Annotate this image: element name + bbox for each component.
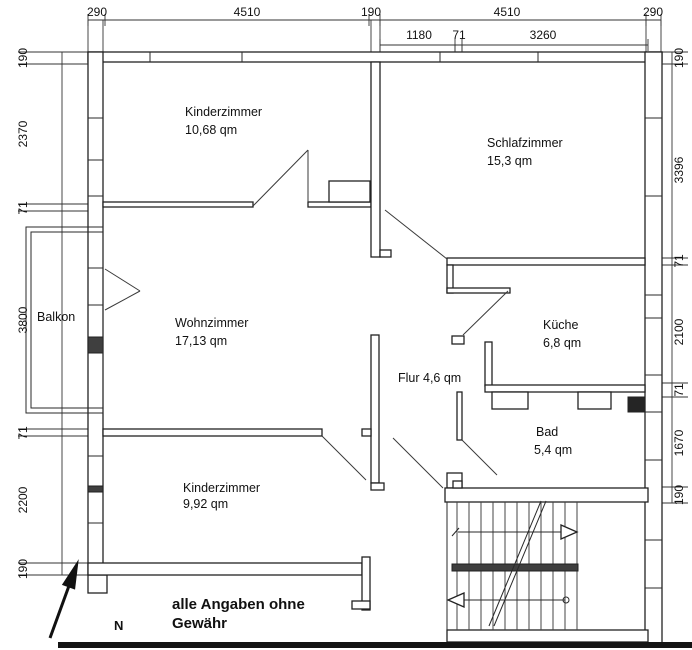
dim-top1-0: 290 <box>87 5 107 19</box>
wall-segment-dark <box>88 486 103 492</box>
disclaimer-line1: alle Angaben ohne <box>172 596 305 613</box>
dim-right-5: 1670 <box>672 429 686 456</box>
room-label-wohnzimmer: Wohnzimmer <box>175 316 248 330</box>
bottom-border <box>58 642 692 648</box>
room-area-kinderzimmer-bottom: 9,92 qm <box>183 497 228 511</box>
dim-top1-3: 4510 <box>494 5 521 19</box>
disclaimer-line2: Gewähr <box>172 615 227 632</box>
room-label-schlafzimmer: Schlafzimmer <box>487 136 563 150</box>
dim-right-6: 190 <box>672 485 686 505</box>
room-area-kueche: 6,8 qm <box>543 336 581 350</box>
staircase <box>445 481 648 642</box>
dim-right-1: 3396 <box>672 156 686 183</box>
floor-plan-page: Kinderzimmer 10,68 qm Schlafzimmer 15,3 … <box>0 0 692 650</box>
room-label-kinderzimmer-top: Kinderzimmer <box>185 105 262 119</box>
dim-right-3: 2100 <box>672 318 686 345</box>
room-area-bad: 5,4 qm <box>534 443 572 457</box>
dim-left-1: 2370 <box>16 120 30 147</box>
dim-left-2: 71 <box>16 201 30 215</box>
dim-top1-1: 4510 <box>234 5 261 19</box>
stair-landing-bar <box>452 564 578 571</box>
dim-left-3: 3800 <box>16 306 30 333</box>
room-label-kueche: Küche <box>543 318 578 332</box>
dim-right-4: 71 <box>672 383 686 397</box>
room-labels: Kinderzimmer 10,68 qm Schlafzimmer 15,3 … <box>37 105 581 511</box>
dim-top2-1: 71 <box>452 28 466 42</box>
room-label-flur: Flur 4,6 qm <box>398 371 461 385</box>
dim-top2-2: 3260 <box>530 28 557 42</box>
room-area-schlafzimmer: 15,3 qm <box>487 154 532 168</box>
dim-top1-4: 290 <box>643 5 663 19</box>
dim-left-5: 2200 <box>16 486 30 513</box>
dim-left-0: 190 <box>16 48 30 68</box>
dim-left-6: 190 <box>16 559 30 579</box>
north-arrow <box>43 557 85 641</box>
floor-plan-drawing: Kinderzimmer 10,68 qm Schlafzimmer 15,3 … <box>0 0 692 650</box>
room-area-wohnzimmer: 17,13 qm <box>175 334 227 348</box>
dim-right-2: 71 <box>672 254 686 268</box>
bathroom-fixtures <box>492 392 645 412</box>
dim-top2-0: 1180 <box>406 28 432 42</box>
door-swings <box>105 150 508 488</box>
room-area-kinderzimmer-top: 10,68 qm <box>185 123 237 137</box>
dim-right-0: 190 <box>672 48 686 68</box>
dim-left-4: 71 <box>16 426 30 440</box>
room-label-bad: Bad <box>536 425 558 439</box>
balcony-door-threshold <box>88 337 103 353</box>
room-label-balkon: Balkon <box>37 310 75 324</box>
north-label: N <box>114 618 123 633</box>
dim-top1-2: 190 <box>361 5 381 19</box>
room-label-kinderzimmer-bottom: Kinderzimmer <box>183 481 260 495</box>
